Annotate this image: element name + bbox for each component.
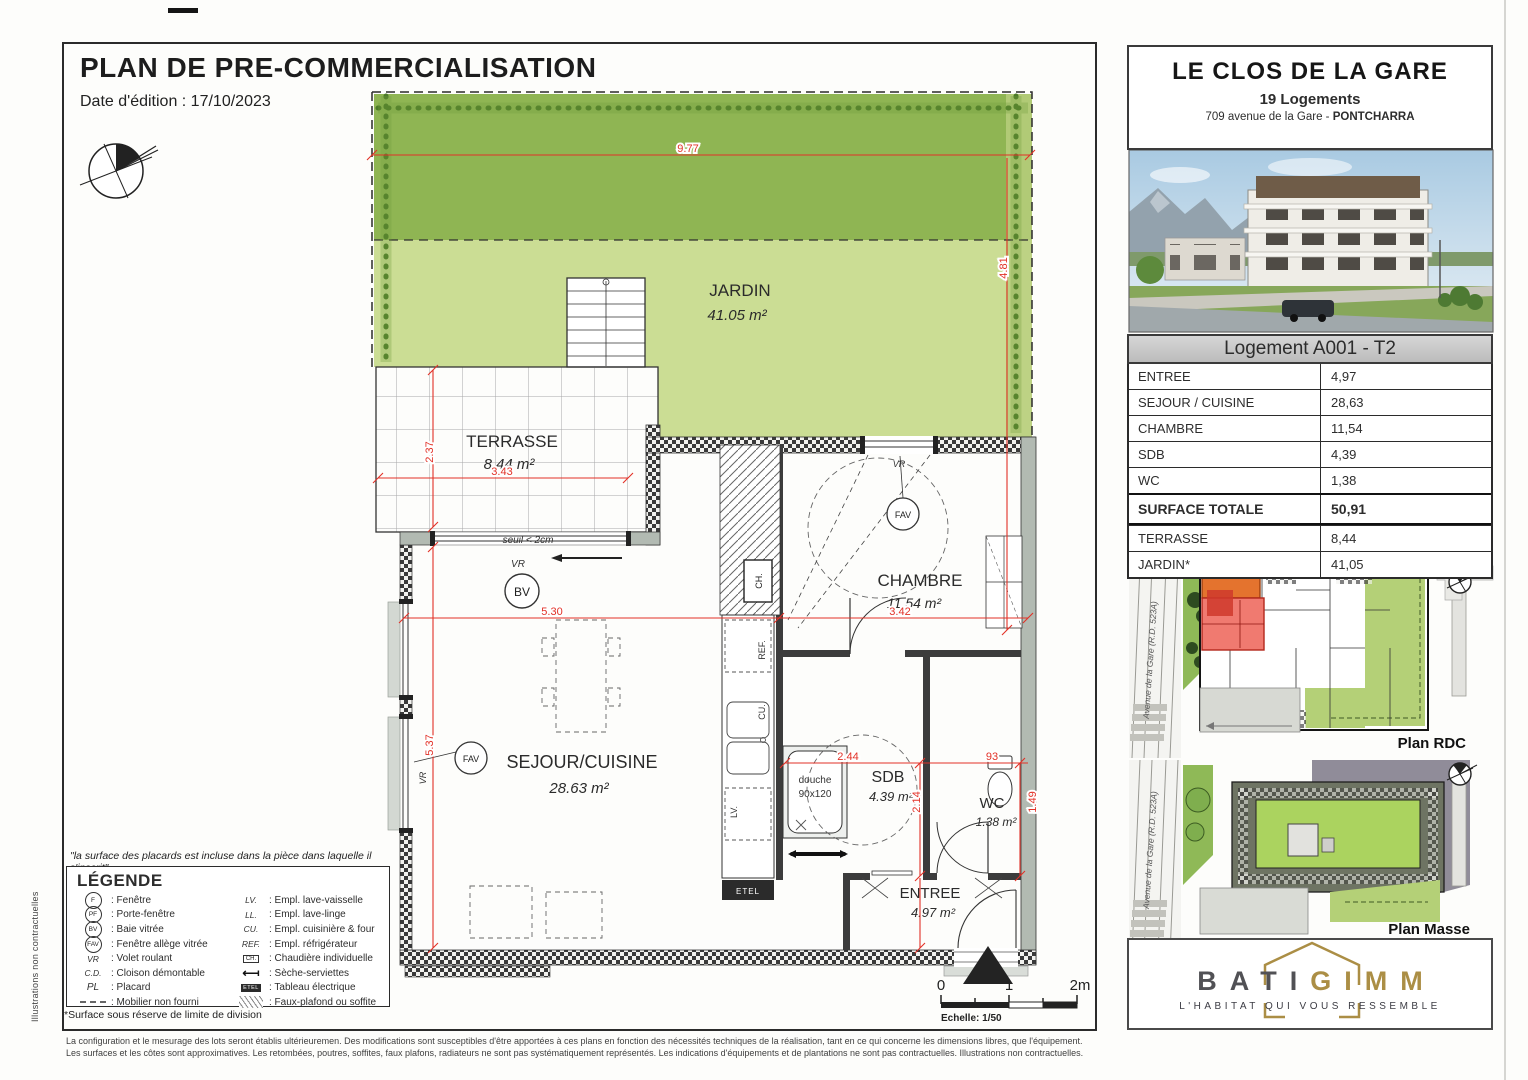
fenetre-allege-icon: FAV (85, 936, 102, 953)
sejour-area: 28.63 m² (548, 780, 609, 797)
surface-footnote: *Surface sous réserve de limite de divis… (64, 1009, 262, 1021)
project-address: 709 avenue de la Gare - PONTCHARRA (1129, 111, 1491, 123)
chaudiere-icon: CH. (243, 955, 259, 963)
jardin-area: 41.05 m² (707, 307, 767, 324)
table-row: SEJOUR / CUISINE28,63 (1129, 389, 1491, 415)
placard-icon: PL (87, 982, 99, 993)
terrasse-name: TERRASSE (466, 432, 558, 451)
legend: LÉGENDE F: Fenêtre PF: Porte-fenêtre BV:… (66, 866, 390, 1007)
page-title: PLAN DE PRE-COMMERCIALISATION (80, 52, 596, 84)
compass-icon (80, 144, 158, 198)
scale-label: Echelle: 1/50 (941, 1013, 1002, 1024)
sejour-name: SEJOUR/CUISINE (506, 752, 657, 772)
cu-label: CU. (757, 704, 767, 720)
scale-2m: 2m (1070, 977, 1091, 994)
mobilier-icon (80, 1001, 106, 1003)
dim-93: 93 (986, 751, 998, 763)
legend-item: LL.: Empl. lave-linge (233, 908, 385, 923)
project-title: LE CLOS DE LA GARE (1129, 58, 1491, 86)
disclaimer-line-1: La configuration et le mesurage des lots… (66, 1036, 1490, 1046)
wc-name: WC (980, 795, 1005, 812)
title-block: PLAN DE PRE-COMMERCIALISATION Date d'édi… (80, 52, 596, 111)
legend-right-column: LV.: Empl. lave-vaisselle LL.: Empl. lav… (233, 893, 385, 1010)
faux-plafond-icon (239, 996, 263, 1008)
legend-left-column: F: Fenêtre PF: Porte-fenêtre BV: Baie vi… (75, 893, 233, 1010)
legend-item: PF: Porte-fenêtre (75, 908, 233, 923)
legend-item: REF.: Empl. réfrigérateur (233, 937, 385, 952)
legend-item: BV: Baie vitrée (75, 922, 233, 937)
seche-serviettes-icon: ⟻ (242, 966, 259, 980)
table-row: SDB4,39 (1129, 441, 1491, 467)
douche-size-label: 90x120 (799, 789, 832, 800)
garden-stairs (567, 278, 645, 367)
dim-4-81: 4.81 (998, 257, 1010, 278)
legend-item: LV.: Empl. lave-vaisselle (233, 893, 385, 908)
legend-item: ⟻: Sèche-serviettes (233, 966, 385, 981)
legend-item: FAV: Fenêtre allège vitrée (75, 937, 233, 952)
lv-label: LV. (729, 806, 739, 818)
sheet-ed ge-line (1504, 0, 1506, 1080)
vr-top-label: VR (511, 559, 525, 570)
cloison-icon: C.D. (85, 968, 102, 978)
legend-item: CU.: Empl. cuisinière & four (233, 922, 385, 937)
scale-1: 1 (1005, 977, 1013, 994)
sdb-area: 4.39 m² (869, 789, 914, 804)
table-row: CHAMBRE11,54 (1129, 415, 1491, 441)
legend-item: : Mobilier non fourni (75, 995, 233, 1010)
etel-label: ETEL (736, 887, 760, 896)
dim-2-37: 2.37 (424, 441, 436, 462)
legend-item: PL: Placard (75, 981, 233, 996)
fav-left-text: FAV (463, 754, 479, 764)
project-city: PONTCHARRA (1333, 111, 1415, 123)
volet-roulant-icon: VR (87, 954, 99, 964)
douche-label: douche (799, 775, 832, 786)
lave-linge-icon: LL. (245, 910, 257, 920)
edition-date: Date d'édition : 17/10/2023 (80, 93, 596, 111)
surface-table: ENTREE4,97 SEJOUR / CUISINE28,63 CHAMBRE… (1127, 364, 1493, 579)
legend-item: CH.: Chaudière individuelle (233, 951, 385, 966)
legend-item: C.D.: Cloison démontable (75, 966, 233, 981)
legend-item: ETEL: Tableau électrique (233, 981, 385, 996)
table-row-total: SURFACE TOTALE50,91 (1129, 493, 1491, 525)
project-header: LE CLOS DE LA GARE 19 Logements 709 aven… (1127, 45, 1493, 150)
tableau-electrique-icon: ETEL (241, 984, 261, 992)
vr-chambre-label: VR (893, 459, 906, 469)
legend-title: LÉGENDE (77, 871, 389, 891)
bv-text: BV (514, 585, 530, 599)
table-row: WC1,38 (1129, 467, 1491, 493)
project-subtitle: 19 Logements (1129, 91, 1491, 108)
entree-area: 4.97 m² (911, 905, 956, 920)
chambre-name: CHAMBRE (877, 571, 962, 590)
dim-5-37: 5.37 (424, 734, 436, 755)
plan-rdc-label: Plan RDC (1398, 735, 1467, 752)
legend-item: F: Fenêtre (75, 893, 233, 908)
ch-label: CH. (754, 573, 764, 589)
dim-1-49: 1.49 (1027, 791, 1039, 812)
plan-masse-label: Plan Masse (1388, 921, 1470, 938)
dim-2-44: 2.44 (837, 751, 858, 763)
side-note: Illustrations non contractuelles (30, 852, 44, 1022)
building-photo (1129, 150, 1493, 332)
disclaimer-line-2: Les surfaces et les côtes sont approxima… (66, 1048, 1490, 1058)
table-row: TERRASSE8,44 (1129, 525, 1491, 551)
sejour-furniture (470, 620, 620, 938)
sheet: { "header": { "title": "PLAN DE PRE-COMM… (0, 0, 1528, 1080)
logo-tagline: L'HABITAT QUI VOUS RESSEMBLE (1129, 1001, 1491, 1012)
cuisiniere-icon: CU. (244, 924, 259, 934)
vr-left-label: VR (418, 771, 428, 784)
mini-plan-masse: Avenue de la Gare (R.D. 523A) Plan Masse (1129, 760, 1477, 956)
lave-vaisselle-icon: LV. (245, 895, 257, 905)
scan-artifact (168, 8, 198, 13)
entree-name: ENTREE (900, 885, 961, 902)
refrigerateur-icon: REF. (242, 939, 260, 949)
scale-bar: 0 1 2m Echelle: 1/50 (937, 977, 1091, 1024)
dim-9-77: 9.77 (677, 143, 698, 155)
logo-wordmark: BATIGIMM (1129, 966, 1491, 997)
table-row: JARDIN*41,05 (1129, 551, 1491, 577)
legend-item: VR: Volet roulant (75, 951, 233, 966)
fav-chambre-text: FAV (895, 510, 911, 520)
table-row: ENTREE4,97 (1129, 364, 1491, 389)
mini-plan-rdc: Avenue de la Gare (R.D. 523A) Plan RDC (1129, 566, 1493, 758)
jardin-name: JARDIN (709, 281, 770, 300)
dim-5-30: 5.30 (541, 606, 562, 618)
terrace-area: TERRASSE 8.44 m² seuil < 2cm (376, 367, 658, 546)
scale-0: 0 (937, 977, 945, 994)
dim-2-14: 2.14 (911, 791, 923, 812)
dim-3-42: 3.42 (889, 606, 910, 618)
wc-area: 1.38 m² (976, 815, 1018, 829)
ref-label: REF. (757, 640, 767, 660)
lot-title-bar: Logement A001 - T2 (1127, 334, 1493, 364)
batigimm-logo: BATIGIMM L'HABITAT QUI VOUS RESSEMBLE (1127, 938, 1493, 1030)
sdb-name: SDB (872, 769, 905, 786)
dim-3-43: 3.43 (491, 466, 512, 478)
legend-item: : Faux-plafond ou soffite (233, 995, 385, 1010)
